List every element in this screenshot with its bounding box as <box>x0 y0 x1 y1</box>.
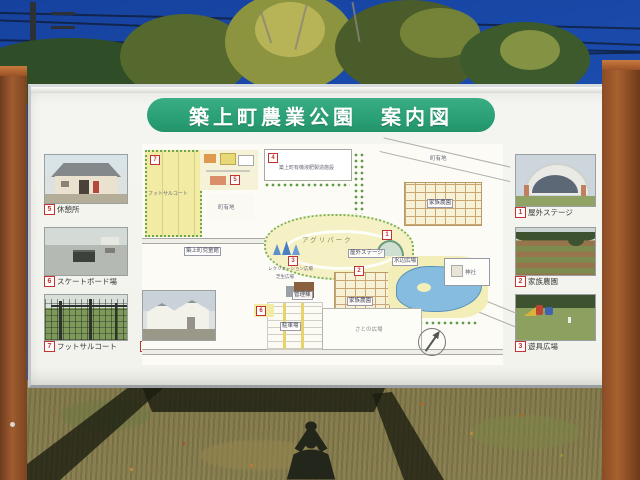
fallen-leaf <box>470 432 473 435</box>
map-number-3: 3 <box>288 256 298 266</box>
fallen-leaf <box>420 402 423 405</box>
map-town-land-label-2: 町有地 <box>430 154 447 162</box>
map-trees <box>353 152 365 214</box>
photo-fertilizer-facility <box>142 290 216 341</box>
map-stage-label: 屋外ステージ <box>348 249 385 258</box>
photo-outdoor-stage <box>515 154 596 207</box>
right-post <box>602 60 640 480</box>
map-trees <box>264 182 350 188</box>
caption-rest-area: 5 休憩所 <box>44 204 80 215</box>
map-futsal-label: フットサルコート <box>148 190 188 197</box>
map-children-hall-label: 築上町児童館 <box>184 247 221 256</box>
map-family-farm-label-2: 家族農園 <box>347 297 373 306</box>
caption-number-1: 1 <box>515 207 526 218</box>
map-shrine: 神社 <box>444 258 490 286</box>
photo-futsal <box>44 294 128 341</box>
caption-number-7: 7 <box>44 341 55 352</box>
fallen-leaf <box>560 454 563 457</box>
map-number-5: 5 <box>230 175 240 185</box>
photo-family-farm <box>515 227 596 276</box>
title-banner: 築上町農業公園 案内図 <box>147 98 495 132</box>
caption-playground: 3 遊具広場 <box>515 341 558 352</box>
map-futsal-court: 7 フットサルコート <box>145 150 202 237</box>
map-town-land-label: 町有地 <box>218 203 235 211</box>
map-parking-label: 駐車場 <box>280 322 301 331</box>
caption-futsal: 7 フットサルコート <box>44 341 117 352</box>
map-waterside-label: 水辺広場 <box>392 257 418 266</box>
caption-label-rest-area: 休憩所 <box>57 204 80 215</box>
map-parking: 駐車場 <box>267 302 323 350</box>
map-fertilizer-label: 築上町有機液肥製造施設 <box>279 164 334 171</box>
map-family-farm: 家族農園 <box>404 182 482 226</box>
fallen-leaf <box>520 414 523 417</box>
caption-number-6: 6 <box>44 276 55 287</box>
map-sato-plaza-label: さとの広場 <box>355 325 382 333</box>
sign-title: 築上町農業公園 案内図 <box>189 101 453 130</box>
caption-label-playground: 遊具広場 <box>528 341 558 352</box>
map-shrine-label: 神社 <box>465 268 476 276</box>
map-number-6: 6 <box>256 306 266 316</box>
caption-outdoor-stage: 1 屋外ステージ <box>515 207 573 218</box>
map-number-2: 2 <box>354 266 364 276</box>
fallen-leaf <box>182 442 185 445</box>
sign-board: 築上町農業公園 案内図 7 フットサルコート 5 <box>28 84 614 388</box>
map-town-land: 町有地 <box>206 194 254 220</box>
photo-skateboard <box>44 227 128 276</box>
map-number-4: 4 <box>268 153 278 163</box>
map-buildings: 5 <box>200 150 258 190</box>
caption-label-futsal: フットサルコート <box>57 341 117 352</box>
north-arrow-icon <box>418 328 446 356</box>
grass <box>0 380 640 480</box>
fallen-leaf <box>250 464 253 467</box>
map-sato-plaza: さとの広場 <box>322 308 422 350</box>
caption-label-family-farm: 家族農園 <box>528 276 558 287</box>
map-recreation-label: レクリエーション広場 <box>268 266 313 272</box>
photo-scene: 築上町農業公園 案内図 7 フットサルコート 5 <box>0 0 640 480</box>
caption-number-3: 3 <box>515 341 526 352</box>
left-post <box>0 66 27 480</box>
caption-number-2: 2 <box>515 276 526 287</box>
map-lawn-label: 芝生広場 <box>276 274 294 280</box>
photo-rest-area <box>44 154 128 204</box>
caption-family-farm: 2 家族農園 <box>515 276 558 287</box>
map-number-7: 7 <box>150 155 160 165</box>
fallen-leaf <box>130 468 133 471</box>
map-fertilizer-facility: 4 築上町有機液肥製造施設 <box>264 149 352 181</box>
map-number-1: 1 <box>382 230 392 240</box>
caption-label-skateboard: スケートボード場 <box>57 276 117 287</box>
map-family-farm-label: 家族農園 <box>427 199 453 208</box>
caption-label-outdoor-stage: 屋外ステージ <box>528 207 573 218</box>
caption-skateboard: 6 スケートボード場 <box>44 276 117 287</box>
map-road <box>384 137 511 167</box>
photo-playground <box>515 294 596 341</box>
photographer-shadow <box>280 419 342 480</box>
caption-number-5: 5 <box>44 204 55 215</box>
map-admin-label: 管理棟 <box>292 291 313 300</box>
map-agri-park-label: アグリパーク <box>302 234 353 244</box>
